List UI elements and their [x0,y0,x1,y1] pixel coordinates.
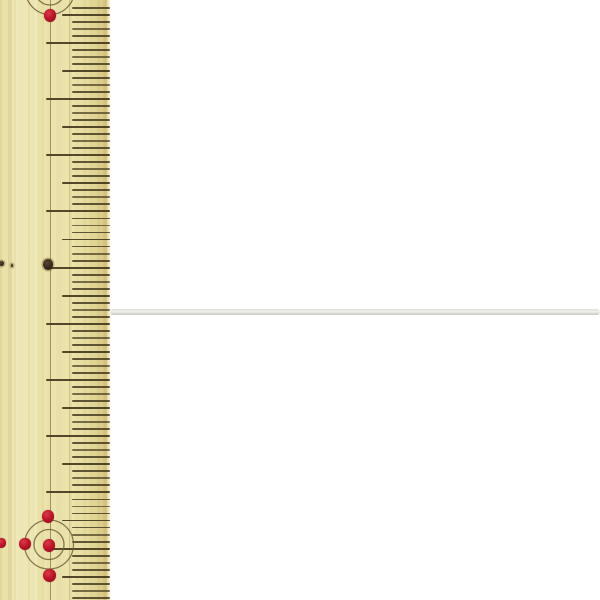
red-pin-dot [43,539,55,552]
red-pin-dot [44,9,56,22]
red-pin-dot [43,569,55,582]
red-pin-dot [42,510,54,523]
white-cord [110,309,600,315]
product-photo-canvas [0,0,600,600]
dark-hole-dot [0,261,4,266]
dark-hole-dot [11,264,14,267]
dark-hole-dot [43,259,54,270]
compass-circle-marks [0,0,111,600]
red-pin-dot [19,538,31,550]
wooden-ruler [0,0,111,600]
compass-circle [35,0,65,5]
